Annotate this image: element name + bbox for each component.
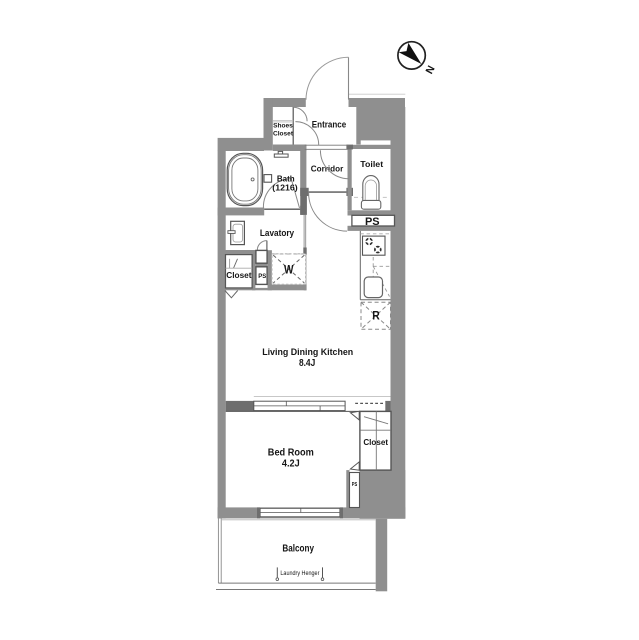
svg-text:W: W: [284, 263, 294, 277]
svg-text:PS: PS: [352, 482, 358, 488]
svg-text:Lavatory: Lavatory: [260, 228, 294, 238]
svg-text:Shoes: Shoes: [273, 123, 293, 130]
svg-text:Balcony: Balcony: [282, 543, 314, 554]
svg-text:Closet: Closet: [226, 270, 251, 280]
svg-text:8.4J: 8.4J: [299, 357, 315, 369]
svg-text:PS: PS: [258, 273, 267, 280]
svg-text:4.2J: 4.2J: [282, 458, 300, 469]
svg-text:Toilet: Toilet: [360, 159, 383, 169]
svg-text:R: R: [372, 309, 380, 323]
svg-text:Closet: Closet: [363, 437, 388, 447]
svg-text:Bed Room: Bed Room: [268, 448, 314, 459]
svg-text:(1216): (1216): [272, 182, 298, 192]
svg-text:Laundry Henger: Laundry Henger: [280, 570, 319, 577]
svg-text:Entrance: Entrance: [312, 120, 346, 130]
svg-text:Closet: Closet: [273, 131, 294, 138]
svg-text:PS: PS: [365, 216, 380, 228]
